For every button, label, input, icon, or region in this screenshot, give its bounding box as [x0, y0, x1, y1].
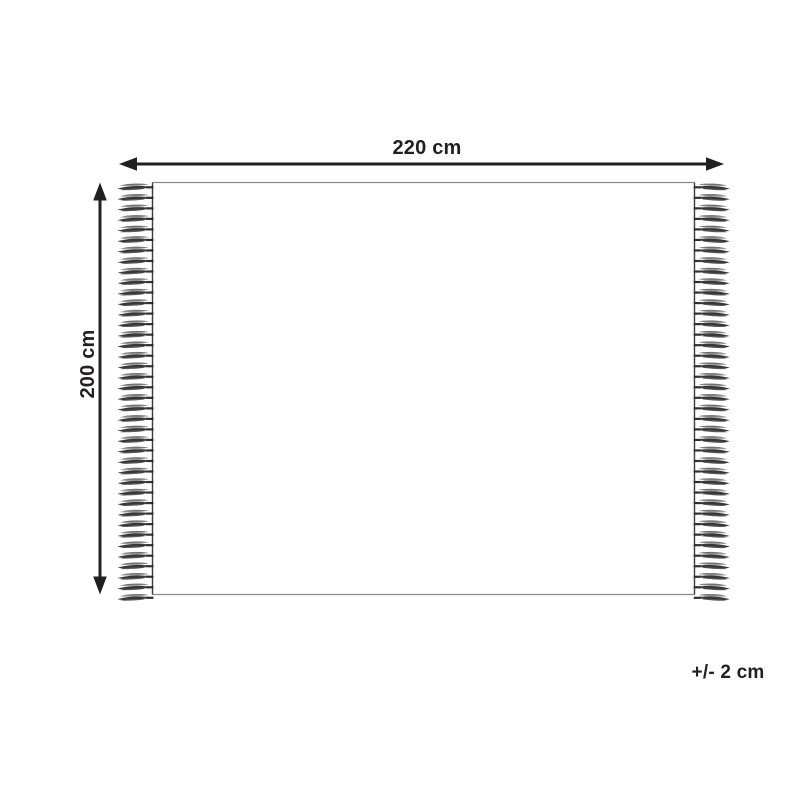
fringe-tassel — [694, 373, 730, 380]
fringe-tassel — [694, 215, 730, 222]
fringe-left — [118, 183, 154, 600]
fringe-tassel — [118, 183, 154, 190]
fringe-tassel — [694, 341, 730, 348]
fringe-tassel — [694, 394, 730, 401]
fringe-tassel — [694, 405, 730, 412]
fringe-tassel — [694, 520, 730, 527]
fringe-tassel — [118, 257, 154, 264]
fringe-tassel — [118, 383, 154, 390]
fringe-tassel — [694, 594, 730, 601]
fringe-tassel — [118, 468, 154, 475]
fringe-tassel — [118, 278, 154, 285]
fringe-tassel — [118, 289, 154, 296]
fringe-tassel — [118, 226, 154, 233]
fringe-tassel — [694, 478, 730, 485]
fringe-tassel — [118, 499, 154, 506]
fringe-tassel — [694, 436, 730, 443]
fringe-tassel — [694, 362, 730, 369]
fringe-tassel — [118, 489, 154, 496]
fringe-tassel — [118, 331, 154, 338]
arrowhead-top — [93, 183, 107, 201]
fringe-tassel — [694, 468, 730, 475]
fringe-tassel — [694, 489, 730, 496]
fringe-tassel — [118, 426, 154, 433]
fringe-tassel — [694, 573, 730, 580]
fringe-tassel — [694, 499, 730, 506]
fringe-tassel — [118, 594, 154, 601]
fringe-tassel — [118, 362, 154, 369]
fringe-tassel — [694, 415, 730, 422]
fringe-tassel — [694, 257, 730, 264]
fringe-tassel — [118, 405, 154, 412]
dimension-diagram: 220 cm 200 cm +/- 2 cm — [0, 0, 800, 800]
fringe-tassel — [118, 541, 154, 548]
fringe-tassel — [694, 541, 730, 548]
fringe-tassel — [694, 226, 730, 233]
fringe-tassel — [118, 194, 154, 201]
fringe-tassel — [694, 247, 730, 254]
fringe-tassel — [694, 531, 730, 538]
fringe-tassel — [118, 478, 154, 485]
fringe-tassel — [118, 436, 154, 443]
fringe-tassel — [694, 331, 730, 338]
fringe-tassel — [694, 289, 730, 296]
fringe-tassel — [694, 183, 730, 190]
fringe-tassel — [694, 310, 730, 317]
fringe-tassel — [118, 573, 154, 580]
rug-outline — [153, 183, 695, 595]
fringe-tassel — [118, 205, 154, 212]
arrowhead-right — [706, 157, 724, 171]
fringe-tassel — [694, 510, 730, 517]
fringe-tassel — [694, 236, 730, 243]
fringe-tassel — [694, 205, 730, 212]
fringe-tassel — [118, 299, 154, 306]
fringe-tassel — [118, 215, 154, 222]
fringe-tassel — [118, 415, 154, 422]
fringe-tassel — [694, 299, 730, 306]
fringe-tassel — [118, 373, 154, 380]
height-dimension-label: 200 cm — [76, 281, 100, 447]
fringe-tassel — [118, 552, 154, 559]
fringe-tassel — [694, 268, 730, 275]
fringe-tassel — [118, 447, 154, 454]
fringe-tassel — [118, 310, 154, 317]
fringe-tassel — [118, 247, 154, 254]
fringe-tassel — [118, 510, 154, 517]
fringe-tassel — [694, 278, 730, 285]
fringe-tassel — [694, 562, 730, 569]
fringe-tassel — [118, 352, 154, 359]
fringe-tassel — [118, 341, 154, 348]
fringe-tassel — [694, 320, 730, 327]
tolerance-label: +/- 2 cm — [648, 661, 800, 685]
fringe-tassel — [118, 320, 154, 327]
fringe-tassel — [694, 457, 730, 464]
fringe-tassel — [118, 236, 154, 243]
fringe-tassel — [118, 583, 154, 590]
arrowhead-left — [119, 157, 137, 171]
width-dimension-label: 220 cm — [342, 136, 512, 160]
fringe-tassel — [694, 552, 730, 559]
fringe-tassel — [118, 531, 154, 538]
fringe-tassel — [694, 583, 730, 590]
fringe-tassel — [694, 352, 730, 359]
fringe-tassel — [118, 520, 154, 527]
fringe-tassel — [694, 447, 730, 454]
fringe-tassel — [694, 194, 730, 201]
arrowhead-bottom — [93, 577, 107, 595]
fringe-tassel — [118, 394, 154, 401]
fringe-tassel — [118, 457, 154, 464]
fringe-tassel — [118, 268, 154, 275]
fringe-tassel — [694, 426, 730, 433]
fringe-right — [694, 183, 730, 600]
fringe-tassel — [694, 383, 730, 390]
fringe-tassel — [118, 562, 154, 569]
